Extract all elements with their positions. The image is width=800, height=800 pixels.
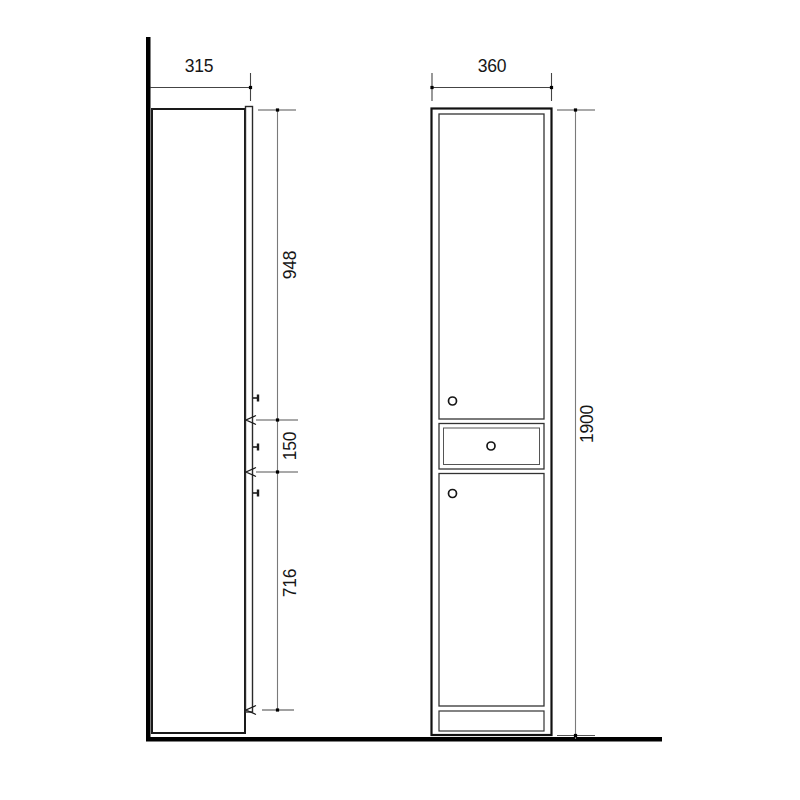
dim-label-716: 716 xyxy=(280,569,300,597)
dim-label-948: 948 xyxy=(280,251,300,279)
front-plinth xyxy=(439,711,544,731)
side-knob-top xyxy=(253,395,258,402)
wall-line xyxy=(146,37,151,741)
side-knob-bottom xyxy=(253,490,258,497)
dimension-height-1900: 1900 xyxy=(557,108,597,739)
side-cabinet-body xyxy=(152,109,245,733)
technical-drawing-page: 315 948 150 716 xyxy=(0,0,800,800)
floor-line xyxy=(146,737,662,742)
bottom-door-knob xyxy=(449,490,457,498)
front-top-door xyxy=(439,114,544,419)
front-bottom-door xyxy=(439,474,544,707)
dim-label-360: 360 xyxy=(478,56,507,76)
dim-label-1900: 1900 xyxy=(577,405,597,443)
dimension-width-360: 360 xyxy=(430,56,553,101)
dimension-side-vertical-chain: 948 150 716 xyxy=(256,108,300,711)
cabinet-dimension-drawing: 315 948 150 716 xyxy=(0,0,800,800)
top-door-knob xyxy=(449,397,457,405)
side-door-panel xyxy=(246,107,253,713)
drawer-knob xyxy=(487,442,495,450)
side-view xyxy=(152,107,258,734)
dim-label-150: 150 xyxy=(280,431,300,460)
dimension-width-315: 315 xyxy=(147,56,252,101)
front-view xyxy=(432,109,552,736)
dim-label-315: 315 xyxy=(185,56,213,76)
side-knob-middle xyxy=(253,444,258,451)
